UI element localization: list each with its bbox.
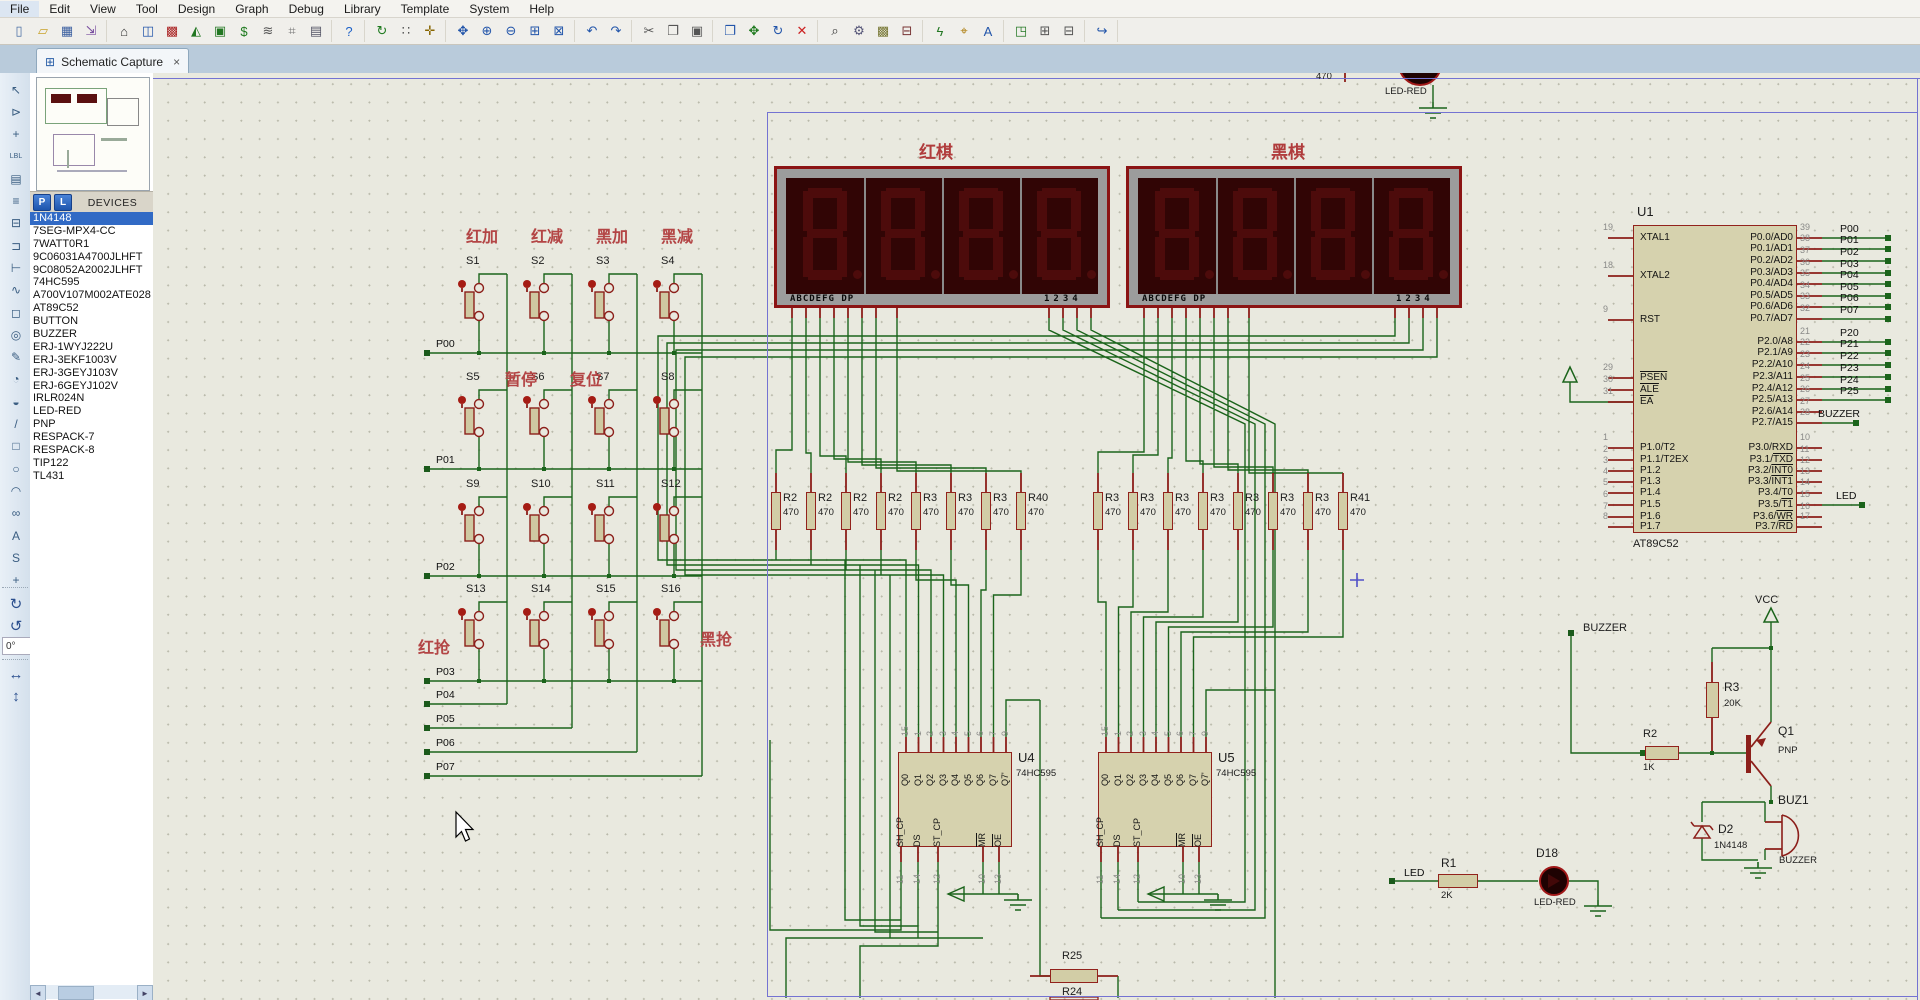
rotation-angle-field[interactable]: 0° <box>2 637 33 655</box>
block-rotate-icon[interactable]: ↻ <box>766 20 790 42</box>
u1-pin-P0.6/AD6: P0.6/AD6 <box>1673 301 1793 312</box>
left-bank-ref-7: R40 <box>1028 492 1048 504</box>
undo-icon[interactable]: ↶ <box>580 20 604 42</box>
schematic-preview[interactable] <box>36 77 150 191</box>
wire-autorouter-icon[interactable]: ϟ <box>928 20 952 42</box>
zoom-sheet-icon[interactable]: ⊠ <box>547 20 571 42</box>
home-icon[interactable]: ⌂ <box>112 20 136 42</box>
exit-to-parent-icon[interactable]: ↪ <box>1090 20 1114 42</box>
left-bank-resistor-4[interactable] <box>911 492 921 530</box>
segment <box>803 191 813 231</box>
u1-pin-num-19: 19 <box>1603 222 1613 232</box>
u1-pin-num-17: 17 <box>1800 511 1810 521</box>
pick-parts-icon[interactable]: ⌕ <box>823 20 847 42</box>
new-project-icon[interactable]: ▯ <box>7 20 31 42</box>
u1-pin-num-24: 24 <box>1800 361 1810 371</box>
r3-resistor[interactable] <box>1706 682 1719 718</box>
pushbutton-S5[interactable] <box>456 390 496 440</box>
u4-74hc595-pin-num: 2 <box>925 710 937 736</box>
2d-line-icon[interactable]: / <box>3 413 29 436</box>
net-label-right-P25: P25 <box>1840 385 1859 397</box>
u4-74hc595-pin-num: 1 <box>913 710 925 736</box>
pushbutton-S12[interactable] <box>651 497 691 547</box>
left-bank-value-2: 470 <box>853 507 869 518</box>
right-bank-value-1: 470 <box>1140 507 1156 518</box>
u1-pin-num-12: 12 <box>1800 455 1810 465</box>
label-reset: 复位 <box>570 366 602 390</box>
segment <box>1316 270 1350 280</box>
mode-toolbar: ↖⊳+LBL▤≡⊟⊐⊢∿◻◎✎◔◒/□○◠∞AS+↻↺0°↔↕ <box>0 73 31 1000</box>
segment <box>1189 191 1199 231</box>
schematic-capture-icon[interactable]: ◫ <box>136 20 160 42</box>
right-bank-resistor-2[interactable] <box>1163 492 1173 530</box>
menu-file[interactable]: File <box>0 1 39 17</box>
toggle-grid-icon[interactable]: ∷ <box>394 20 418 42</box>
electrical-rule-check-icon[interactable]: ≋ <box>256 20 280 42</box>
digit-separator <box>864 178 866 294</box>
right-bank-ref-0: R3 <box>1105 492 1119 504</box>
u1-pin-num-30: 30 <box>1603 374 1613 384</box>
keypad-header-0: 红加 <box>466 223 498 247</box>
device-item-respack-7[interactable]: RESPACK-7 <box>30 431 153 444</box>
right-bank-value-0: 470 <box>1105 507 1121 518</box>
u5-74hc595-ref: U5 <box>1218 750 1235 765</box>
paste-icon[interactable]: ▣ <box>685 20 709 42</box>
pushbutton-S4[interactable] <box>651 274 691 324</box>
pushbutton-S16[interactable] <box>651 602 691 652</box>
tab-label: Schematic Capture <box>61 55 163 69</box>
u5-74hc595-pin-num: 15 <box>1100 710 1112 736</box>
menu-help[interactable]: Help <box>519 1 564 17</box>
2d-box-icon[interactable]: □ <box>3 435 29 458</box>
device-item-erj-1wyj222u[interactable]: ERJ-1WYJ222U <box>30 341 153 354</box>
divider <box>2 587 28 588</box>
u4-74hc595-pin-name: OE <box>993 813 1005 847</box>
u5-74hc595-pin-num: 9 <box>1200 710 1212 736</box>
segment <box>886 270 920 280</box>
terminals-mode-icon[interactable]: ⊐ <box>3 234 29 257</box>
menu-view[interactable]: View <box>80 1 126 17</box>
pushbutton-S8[interactable] <box>651 390 691 440</box>
zoom-in-icon[interactable]: ⊕ <box>475 20 499 42</box>
u1-pin-P0.3/AD3: P0.3/AD3 <box>1673 267 1793 278</box>
decimal-point <box>1439 270 1448 279</box>
2d-circle-icon[interactable]: ○ <box>3 457 29 480</box>
subcircuit-mode-icon[interactable]: ⊟ <box>3 212 29 235</box>
net-label-P04: P04 <box>436 689 455 701</box>
d2-ref: D2 <box>1718 822 1733 836</box>
library-button[interactable]: L <box>54 194 72 211</box>
tab-bar: ⊞ Schematic Capture × <box>0 45 1920 74</box>
u4-74hc595-pin-num: 13 <box>993 864 1005 884</box>
u1-pin-XTAL2: XTAL2 <box>1640 270 1670 281</box>
pushbutton-S14[interactable] <box>521 602 561 652</box>
u4-74hc595-pin-num: 14 <box>912 864 924 884</box>
menu-tool[interactable]: Tool <box>126 1 168 17</box>
buz1-ref: BUZ1 <box>1778 793 1809 807</box>
led-terminal-label: LED <box>1404 867 1424 879</box>
graph-mode-icon[interactable]: ∿ <box>3 279 29 302</box>
left-bank-resistor-1[interactable] <box>806 492 816 530</box>
right-bank-resistor-3[interactable] <box>1198 492 1208 530</box>
pushbutton-S2[interactable] <box>521 274 561 324</box>
u1-pin-P3.5/: P3.5/T1 <box>1673 499 1793 510</box>
button-label-S8: S8 <box>661 371 674 383</box>
net-label-P06: P06 <box>436 737 455 749</box>
device-item-erj-6geyj102v[interactable]: ERJ-6GEYJ102V <box>30 380 153 393</box>
u4-74hc595-pin-name: Q0 <box>900 756 912 786</box>
decompose-icon[interactable]: ⊟ <box>895 20 919 42</box>
divider <box>2 659 28 660</box>
segment <box>1233 191 1243 231</box>
u4-74hc595-pin-num: 3 <box>938 710 950 736</box>
device-item-erj-3geyj103v[interactable]: ERJ-3GEYJ103V <box>30 367 153 380</box>
pushbutton-S6[interactable] <box>521 390 561 440</box>
u1-pin-P2.6/A14: P2.6/A14 <box>1673 406 1793 417</box>
u1-pin-P2.5/A13: P2.5/A13 <box>1673 394 1793 405</box>
voltage-probe-mode-icon[interactable]: ✎ <box>3 346 29 369</box>
u4-74hc595-pin-name: Q7' <box>1000 756 1012 786</box>
u1-pin-EA: EA <box>1640 396 1653 407</box>
u5-74hc595-pin-name: Q1 <box>1113 756 1125 786</box>
preview-shape <box>51 94 71 103</box>
menu-system[interactable]: System <box>459 1 519 17</box>
red-display-title: 红棋 <box>919 138 953 163</box>
segment <box>1389 191 1399 231</box>
left-bank-resistor-7[interactable] <box>1016 492 1026 530</box>
scroll-thumb[interactable] <box>58 986 94 1000</box>
net-label-buzzer: BUZZER <box>1818 408 1860 420</box>
u1-value: AT89C52 <box>1633 538 1679 550</box>
segment <box>1423 191 1433 231</box>
vcc-label: VCC <box>1755 594 1778 606</box>
documentation-icon[interactable]: ▤ <box>304 20 328 42</box>
net-label-right-P22: P22 <box>1840 350 1859 362</box>
mirror-x-button[interactable]: ↔ <box>3 663 29 686</box>
u1-ref: U1 <box>1637 204 1654 219</box>
u4-74hc595-pin-name: Q2 <box>925 756 937 786</box>
device-item-tip122[interactable]: TIP122 <box>30 457 153 470</box>
u4-74hc595-pin-name: Q3 <box>938 756 950 786</box>
menu-template[interactable]: Template <box>391 1 460 17</box>
selection-rect-top <box>767 112 1917 113</box>
device-item-pnp[interactable]: PNP <box>30 418 153 431</box>
pcb-layout-icon[interactable]: ▩ <box>160 20 184 42</box>
device-item-button[interactable]: BUTTON <box>30 315 153 328</box>
u1-pin-P0.4/AD4: P0.4/AD4 <box>1673 278 1793 289</box>
right-bank-resistor-6[interactable] <box>1303 492 1313 530</box>
u4-74hc595-pin-name: Q1 <box>913 756 925 786</box>
u5-74hc595-pin-name: Q7' <box>1200 756 1212 786</box>
u4-74hc595-pin-name: Q4 <box>950 756 962 786</box>
3d-visualizer-icon[interactable]: ◭ <box>184 20 208 42</box>
segment <box>964 270 998 280</box>
schematic-canvas[interactable]: ABCDEFG DP1234红棋ABCDEFG DP1234黑棋红加P04红减P… <box>153 73 1920 1000</box>
segment <box>959 191 969 231</box>
object-selector: P L DEVICES 1N41487SEG-MPX4-CC7WATT0R19C… <box>30 73 154 1000</box>
left-bank-resistor-5[interactable] <box>946 492 956 530</box>
pushbutton-S1[interactable] <box>456 274 496 324</box>
u4-74hc595-pin-name: SH_CP <box>895 813 907 847</box>
right-bank-ref-7: R41 <box>1350 492 1370 504</box>
left-bank-ref-4: R3 <box>923 492 937 504</box>
u5-74hc595-pin-name: Q5 <box>1163 756 1175 786</box>
zoom-out-icon[interactable]: ⊖ <box>499 20 523 42</box>
scroll-right-icon[interactable]: ► <box>137 985 153 1000</box>
segment <box>1267 191 1277 231</box>
zoom-area-icon[interactable]: ⊞ <box>523 20 547 42</box>
device-list: 1N41487SEG-MPX4-CC7WATT0R19C06031A4700JL… <box>30 212 153 483</box>
device-pins-mode-icon[interactable]: ⊢ <box>3 256 29 279</box>
device-item-7seg-mpx4-cc[interactable]: 7SEG-MPX4-CC <box>30 225 153 238</box>
buzzer-terminal-label: BUZZER <box>1583 622 1627 634</box>
u1-pin-P3.1/: P3.1/TXD <box>1673 454 1793 465</box>
u1-pin-num-4: 4 <box>1603 466 1608 476</box>
u5-74hc595-pin-num: 4 <box>1150 710 1162 736</box>
u1-pin-num-27: 27 <box>1800 396 1810 406</box>
menu-debug[interactable]: Debug <box>279 1 334 17</box>
digit-separator <box>942 178 944 294</box>
u4-74hc595-pin-num: 15 <box>900 710 912 736</box>
generator-mode-icon[interactable]: ◎ <box>3 323 29 346</box>
device-item-irlr024n[interactable]: IRLR024N <box>30 392 153 405</box>
block-copy-icon[interactable]: ❐ <box>718 20 742 42</box>
2d-symbol-icon[interactable]: S <box>3 546 29 569</box>
false-origin-icon[interactable]: ✛ <box>418 20 442 42</box>
menu-graph[interactable]: Graph <box>225 1 278 17</box>
u5-74hc595-pin-num: 6 <box>1175 710 1187 736</box>
r25-ref: R25 <box>1062 950 1082 962</box>
sheet-border-right <box>1917 78 1918 1000</box>
redo-icon[interactable]: ↷ <box>604 20 628 42</box>
help-icon[interactable]: ? <box>337 20 361 42</box>
u1-pin-P2.4/A12: P2.4/A12 <box>1673 383 1793 394</box>
left-bank-ref-6: R3 <box>993 492 1007 504</box>
u5-74hc595-pin-name: Q3 <box>1138 756 1150 786</box>
u4-74hc595-pin-num: 10 <box>977 864 989 884</box>
close-icon[interactable]: × <box>173 55 180 69</box>
left-bank-value-3: 470 <box>888 507 904 518</box>
u4-74hc595-pin-name: Q5 <box>963 756 975 786</box>
virtual-instruments-mode-icon[interactable]: ◒ <box>3 390 29 413</box>
mirror-y-button[interactable]: ↕ <box>3 685 29 708</box>
u1-pin-num-18: 18 <box>1603 260 1613 270</box>
import-legacy-icon[interactable]: ⇲ <box>79 20 103 42</box>
pushbutton-S11[interactable] <box>586 497 626 547</box>
left-bank-ref-1: R2 <box>818 492 832 504</box>
u1-pin-num-9: 9 <box>1603 304 1608 314</box>
device-item-tl431[interactable]: TL431 <box>30 470 153 483</box>
junction-dot-mode-icon[interactable]: + <box>3 123 29 146</box>
left-bank-resistor-6[interactable] <box>981 492 991 530</box>
2d-arc-icon[interactable]: ◠ <box>3 479 29 502</box>
copy-icon[interactable]: ❐ <box>661 20 685 42</box>
u5-74hc595-pin-name: ST_CP <box>1132 813 1144 847</box>
remove-sheet-icon[interactable]: ⊟ <box>1057 20 1081 42</box>
left-bank-ref-2: R2 <box>853 492 867 504</box>
u1-pin-num-37: 37 <box>1800 245 1810 255</box>
u1-pin-num-5: 5 <box>1603 477 1608 487</box>
preview-shape <box>67 150 69 168</box>
r1-resistor[interactable] <box>1438 874 1478 888</box>
2d-path-icon[interactable]: ∞ <box>3 502 29 525</box>
pushbutton-S7[interactable] <box>586 390 626 440</box>
block-move-icon[interactable]: ✥ <box>742 20 766 42</box>
pushbutton-S10[interactable] <box>521 497 561 547</box>
device-item-1n4148[interactable]: 1N4148 <box>30 212 153 225</box>
save-project-icon[interactable]: ▦ <box>55 20 79 42</box>
u5-74hc595-pin-num: 13 <box>1193 864 1205 884</box>
right-bank-ref-5: R3 <box>1280 492 1294 504</box>
right-bank-ref-6: R3 <box>1315 492 1329 504</box>
tab-schematic-capture[interactable]: ⊞ Schematic Capture × <box>36 48 189 74</box>
right-bank-resistor-4[interactable] <box>1233 492 1243 530</box>
u1-pin-P1.0/T2: P1.0/T2 <box>1640 442 1675 453</box>
right-bank-resistor-5[interactable] <box>1268 492 1278 530</box>
button-label-S13: S13 <box>466 583 486 595</box>
segment <box>1037 191 1047 231</box>
device-item-buzzer[interactable]: BUZZER <box>30 328 153 341</box>
device-item-erj-3ekf1003v[interactable]: ERJ-3EKF1003V <box>30 354 153 367</box>
u4-74hc595-pin-name: Q6 <box>975 756 987 786</box>
new-sheet-icon[interactable]: ⊞ <box>1033 20 1057 42</box>
u1-pin-num-2: 2 <box>1603 444 1608 454</box>
packaging-tool-icon[interactable]: ▩ <box>871 20 895 42</box>
digit-separator <box>1216 178 1218 294</box>
r1-ref: R1 <box>1441 856 1456 870</box>
selector-scrollbar[interactable]: ◄ ► <box>30 985 153 999</box>
pushbutton-S3[interactable] <box>586 274 626 324</box>
red-display-segment-labels: ABCDEFG DP <box>790 294 854 304</box>
menu-edit[interactable]: Edit <box>39 1 80 17</box>
buses-mode-icon[interactable]: ≡ <box>3 190 29 213</box>
u1-pin-num-6: 6 <box>1603 489 1608 499</box>
d2-value: 1N4148 <box>1714 840 1747 851</box>
tape-recorder-mode-icon[interactable]: ◻ <box>3 301 29 324</box>
component-mode-icon[interactable]: ⊳ <box>3 100 29 123</box>
scroll-left-icon[interactable]: ◄ <box>30 985 46 1000</box>
search-tag-icon[interactable]: ⌖ <box>952 20 976 42</box>
selection-mode-icon[interactable]: ↖ <box>3 78 29 101</box>
make-device-icon[interactable]: ⚙ <box>847 20 871 42</box>
u4-74hc595-pin-name: DS <box>912 813 924 847</box>
right-bank-value-5: 470 <box>1280 507 1296 518</box>
u4-74hc595-value: 74HC595 <box>1016 768 1056 779</box>
menu-design[interactable]: Design <box>168 1 225 17</box>
u5-74hc595-pin-name: Q2 <box>1125 756 1137 786</box>
segment <box>837 191 847 231</box>
pick-devices-button[interactable]: P <box>33 194 51 211</box>
u5-74hc595-pin-name: OE <box>1193 813 1205 847</box>
u1-pin-P3.3/: P3.3/INT1 <box>1673 476 1793 487</box>
device-item-at89c52[interactable]: AT89C52 <box>30 302 153 315</box>
text-script-mode-icon[interactable]: ▤ <box>3 167 29 190</box>
u4-74hc595-pin-num: 7 <box>988 710 1000 736</box>
keypad-header-3: 黑减 <box>661 223 693 247</box>
u1-pin-P2.7/A15: P2.7/A15 <box>1673 417 1793 428</box>
u5-74hc595-pin-num: 12 <box>1132 864 1144 884</box>
device-item-9c08052a2002jlhft[interactable]: 9C08052A2002JLHFT <box>30 264 153 277</box>
2d-markers-icon[interactable]: + <box>3 569 29 592</box>
right-bank-resistor-0[interactable] <box>1093 492 1103 530</box>
net-label-right-P02: P02 <box>1840 246 1859 258</box>
cut-icon[interactable]: ✂ <box>637 20 661 42</box>
left-bank-resistor-0[interactable] <box>771 492 781 530</box>
u1-pin-P2.0/A8: P2.0/A8 <box>1673 336 1793 347</box>
u1-pin-P3.7/: P3.7/RD <box>1673 521 1793 532</box>
center-at-cursor-icon[interactable]: ✥ <box>451 20 475 42</box>
right-bank-resistor-7[interactable] <box>1338 492 1348 530</box>
rotate-ccw-button[interactable]: ↺ <box>3 614 29 637</box>
device-item-a700v107m002ate028[interactable]: A700V107M002ATE028 <box>30 289 153 302</box>
net-label-P02: P02 <box>436 561 455 573</box>
open-project-icon[interactable]: ▱ <box>31 20 55 42</box>
digit-separator <box>1020 178 1022 294</box>
current-probe-mode-icon[interactable]: ◔ <box>3 368 29 391</box>
keypad-header-2: 黑加 <box>596 223 628 247</box>
wire-label-mode-icon[interactable]: LBL <box>3 145 29 168</box>
u1-pin-num-3: 3 <box>1603 455 1608 465</box>
device-item-9c06031a4700jlhft[interactable]: 9C06031A4700JLHFT <box>30 251 153 264</box>
left-bank-value-1: 470 <box>818 507 834 518</box>
d18-ref: D18 <box>1536 846 1558 860</box>
bill-of-materials-icon[interactable]: $ <box>232 20 256 42</box>
preview-shape <box>107 98 139 126</box>
u5-74hc595-pin-name: Q4 <box>1150 756 1162 786</box>
rotate-cw-button[interactable]: ↻ <box>3 592 29 615</box>
left-bank-ref-0: R2 <box>783 492 797 504</box>
u1-pin-num-22: 22 <box>1800 337 1810 347</box>
pushbutton-S9[interactable] <box>456 497 496 547</box>
net-label-P00: P00 <box>436 338 455 350</box>
r24-ref: R24 <box>1062 986 1082 998</box>
menu-library[interactable]: Library <box>334 1 391 17</box>
block-delete-icon[interactable]: ✕ <box>790 20 814 42</box>
design-explorer-2-icon[interactable]: ◳ <box>1009 20 1033 42</box>
design-explorer-icon[interactable]: ▣ <box>208 20 232 42</box>
segment <box>808 270 842 280</box>
left-bank-value-5: 470 <box>958 507 974 518</box>
measurement-icon[interactable]: ⌗ <box>280 20 304 42</box>
button-label-S5: S5 <box>466 371 479 383</box>
left-bank-resistor-2[interactable] <box>841 492 851 530</box>
device-item-led-red[interactable]: LED-RED <box>30 405 153 418</box>
u1-pin-num-16: 16 <box>1800 501 1810 511</box>
u5-74hc595-pin-num: 5 <box>1163 710 1175 736</box>
r25-resistor[interactable] <box>1050 969 1098 983</box>
refresh-display-icon[interactable]: ↻ <box>370 20 394 42</box>
device-item-7watt0r1[interactable]: 7WATT0R1 <box>30 238 153 251</box>
u1-pin-num-8: 8 <box>1603 511 1608 521</box>
left-bank-value-6: 470 <box>993 507 1009 518</box>
device-item-respack-8[interactable]: RESPACK-8 <box>30 444 153 457</box>
q1-ref: Q1 <box>1778 724 1794 738</box>
2d-text-icon[interactable]: A <box>3 524 29 547</box>
pushbutton-S15[interactable] <box>586 602 626 652</box>
segment <box>993 191 1003 231</box>
device-item-74hc595[interactable]: 74HC595 <box>30 276 153 289</box>
u5-74hc595-pin-num: 2 <box>1125 710 1137 736</box>
r2-resistor[interactable] <box>1645 746 1679 760</box>
red-display-digit-labels: 1234 <box>1044 294 1082 304</box>
property-assignment-tool-icon[interactable]: A <box>976 20 1000 42</box>
decimal-point <box>853 270 862 279</box>
left-bank-resistor-3[interactable] <box>876 492 886 530</box>
right-bank-ref-3: R3 <box>1210 492 1224 504</box>
pushbutton-S13[interactable] <box>456 602 496 652</box>
right-bank-resistor-1[interactable] <box>1128 492 1138 530</box>
keypad-header-1: 红减 <box>531 223 563 247</box>
